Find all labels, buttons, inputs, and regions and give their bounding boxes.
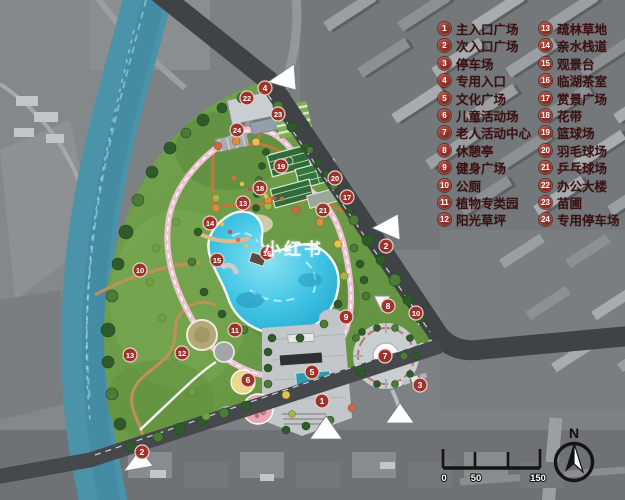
legend-item: 2次入口广场 xyxy=(438,39,531,52)
legend-item-label: 篮球场 xyxy=(557,123,595,142)
svg-text:12: 12 xyxy=(178,349,186,358)
legend-item: 23苗圃 xyxy=(539,196,620,209)
legend-item-number: 1 xyxy=(438,22,451,35)
svg-text:22: 22 xyxy=(243,94,251,103)
north-label: N xyxy=(569,425,579,441)
map-marker-9: 9 xyxy=(339,310,353,324)
legend-item: 17赏景广场 xyxy=(539,92,620,105)
legend-item-label: 疏林草地 xyxy=(557,19,607,38)
legend-item-label: 专用停车场 xyxy=(557,210,620,229)
map-marker-22: 22 xyxy=(240,91,254,105)
legend-item-label: 休憩亭 xyxy=(456,141,494,160)
legend-item: 11植物专类园 xyxy=(438,196,531,209)
legend-item: 7老人活动中心 xyxy=(438,126,531,139)
svg-text:13: 13 xyxy=(239,199,247,208)
svg-text:6: 6 xyxy=(246,375,251,385)
legend-item: 13疏林草地 xyxy=(539,22,620,35)
svg-text:2: 2 xyxy=(384,241,389,251)
legend-item-label: 羽毛球场 xyxy=(557,141,607,160)
svg-text:17: 17 xyxy=(343,193,351,202)
map-marker-14: 14 xyxy=(203,216,217,230)
legend-item-number: 3 xyxy=(438,57,451,70)
legend-item: 24专用停车场 xyxy=(539,213,620,226)
park-master-plan-screenshot: 1223456789101011121313141516171819202122… xyxy=(0,0,625,500)
map-marker-2: 2 xyxy=(135,445,149,459)
svg-text:4: 4 xyxy=(263,83,268,93)
svg-text:10: 10 xyxy=(412,309,420,318)
legend-item: 16临湖茶室 xyxy=(539,74,620,87)
legend-item: 6儿童活动场 xyxy=(438,109,531,122)
svg-text:7: 7 xyxy=(383,351,388,361)
scale-label-150: 150 xyxy=(530,473,546,484)
legend-item-label: 观景台 xyxy=(557,54,595,73)
legend-item-label: 专用入口 xyxy=(456,71,506,90)
legend-item-label: 文化广场 xyxy=(456,89,506,108)
legend-item: 4专用入口 xyxy=(438,74,531,87)
svg-text:14: 14 xyxy=(206,219,215,228)
legend-item-label: 儿童活动场 xyxy=(456,106,519,125)
map-marker-15: 15 xyxy=(210,253,224,267)
legend-item-label: 老人活动中心 xyxy=(456,123,531,142)
map-marker-2: 2 xyxy=(379,239,393,253)
legend-column-left: 1主入口广场2次入口广场3停车场4专用入口5文化广场6儿童活动场7老人活动中心8… xyxy=(438,22,531,231)
legend-item-number: 24 xyxy=(539,213,552,226)
legend-item: 8休憩亭 xyxy=(438,144,531,157)
svg-text:19: 19 xyxy=(277,162,285,171)
map-marker-24: 24 xyxy=(230,123,244,137)
legend-column-right: 13疏林草地14亲水栈道15观景台16临湖茶室17赏景广场18花带19篮球场20… xyxy=(539,22,620,231)
legend-item-number: 18 xyxy=(539,109,552,122)
legend-item: 22办公大楼 xyxy=(539,179,620,192)
legend-item-label: 赏景广场 xyxy=(557,89,607,108)
map-marker-1: 1 xyxy=(315,394,329,408)
map-marker-4: 4 xyxy=(258,81,272,95)
legend-item: 1主入口广场 xyxy=(438,22,531,35)
map-marker-20: 20 xyxy=(328,171,342,185)
svg-text:5: 5 xyxy=(310,367,315,377)
map-marker-17: 17 xyxy=(340,190,354,204)
legend-item-label: 乒乓球场 xyxy=(557,158,607,177)
map-marker-8: 8 xyxy=(381,299,395,313)
legend-item-number: 15 xyxy=(539,57,552,70)
map-marker-12: 12 xyxy=(175,346,189,360)
legend-item-number: 23 xyxy=(539,196,552,209)
legend-item-label: 阳光草坪 xyxy=(456,210,506,229)
legend-item-number: 11 xyxy=(438,196,451,209)
watermark: 小红书 xyxy=(264,235,324,260)
legend-item-number: 2 xyxy=(438,39,451,52)
map-marker-21: 21 xyxy=(316,203,330,217)
legend-item-label: 苗圃 xyxy=(557,193,582,212)
svg-text:24: 24 xyxy=(233,126,242,135)
legend-item-number: 4 xyxy=(438,74,451,87)
legend-item: 15观景台 xyxy=(539,57,620,70)
legend-item: 10公厕 xyxy=(438,179,531,192)
legend-item-label: 亲水栈道 xyxy=(557,36,607,55)
legend-item: 3停车场 xyxy=(438,57,531,70)
legend-item-label: 停车场 xyxy=(456,54,494,73)
map-marker-10: 10 xyxy=(409,306,423,320)
svg-text:11: 11 xyxy=(231,326,239,335)
map-marker-7: 7 xyxy=(378,349,392,363)
legend-item-number: 6 xyxy=(438,109,451,122)
legend-item: 21乒乓球场 xyxy=(539,161,620,174)
svg-text:2: 2 xyxy=(140,447,145,457)
legend-item-number: 21 xyxy=(539,161,552,174)
svg-text:1: 1 xyxy=(320,396,325,406)
legend-item-label: 健身广场 xyxy=(456,158,506,177)
map-marker-23: 23 xyxy=(271,107,285,121)
map-marker-3: 3 xyxy=(413,378,427,392)
legend-item: 12阳光草坪 xyxy=(438,213,531,226)
legend-item-number: 20 xyxy=(539,144,552,157)
legend-item-number: 7 xyxy=(438,126,451,139)
svg-text:8: 8 xyxy=(386,301,391,311)
legend-item-number: 5 xyxy=(438,92,451,105)
scale-label-50: 50 xyxy=(471,473,482,484)
map-marker-13: 13 xyxy=(123,348,137,362)
map-marker-18: 18 xyxy=(253,181,267,195)
svg-text:21: 21 xyxy=(319,206,327,215)
legend-item-label: 临湖茶室 xyxy=(557,71,607,90)
legend-item-number: 12 xyxy=(438,213,451,226)
legend-item-label: 花带 xyxy=(557,106,582,125)
map-marker-11: 11 xyxy=(228,323,242,337)
legend-item: 9健身广场 xyxy=(438,161,531,174)
legend: 1主入口广场2次入口广场3停车场4专用入口5文化广场6儿童活动场7老人活动中心8… xyxy=(438,22,620,231)
svg-text:23: 23 xyxy=(274,110,282,119)
legend-item-number: 22 xyxy=(539,179,552,192)
svg-text:15: 15 xyxy=(213,256,221,265)
map-marker-13: 13 xyxy=(236,196,250,210)
legend-item-number: 10 xyxy=(438,179,451,192)
legend-item-number: 16 xyxy=(539,74,552,87)
legend-item: 18花带 xyxy=(539,109,620,122)
legend-item-number: 17 xyxy=(539,92,552,105)
legend-item-label: 植物专类园 xyxy=(456,193,519,212)
legend-item-number: 8 xyxy=(438,144,451,157)
legend-item: 14亲水栈道 xyxy=(539,39,620,52)
scale-label-0: 0 xyxy=(441,473,446,484)
svg-text:9: 9 xyxy=(344,312,349,322)
legend-item-label: 公厕 xyxy=(456,176,481,195)
legend-item-label: 次入口广场 xyxy=(456,36,519,55)
legend-item-number: 14 xyxy=(539,39,552,52)
svg-text:3: 3 xyxy=(418,380,423,390)
legend-item-label: 主入口广场 xyxy=(456,19,519,38)
legend-item-number: 19 xyxy=(539,126,552,139)
map-marker-19: 19 xyxy=(274,159,288,173)
map-marker-10: 10 xyxy=(133,263,147,277)
map-marker-5: 5 xyxy=(305,365,319,379)
svg-text:18: 18 xyxy=(256,184,264,193)
legend-item-number: 9 xyxy=(438,161,451,174)
legend-item: 5文化广场 xyxy=(438,92,531,105)
legend-item: 19篮球场 xyxy=(539,126,620,139)
legend-item-label: 办公大楼 xyxy=(557,176,607,195)
svg-text:13: 13 xyxy=(126,351,134,360)
map-marker-6: 6 xyxy=(241,373,255,387)
svg-text:20: 20 xyxy=(331,174,339,183)
legend-item: 20羽毛球场 xyxy=(539,144,620,157)
legend-item-number: 13 xyxy=(539,22,552,35)
svg-text:10: 10 xyxy=(136,266,144,275)
